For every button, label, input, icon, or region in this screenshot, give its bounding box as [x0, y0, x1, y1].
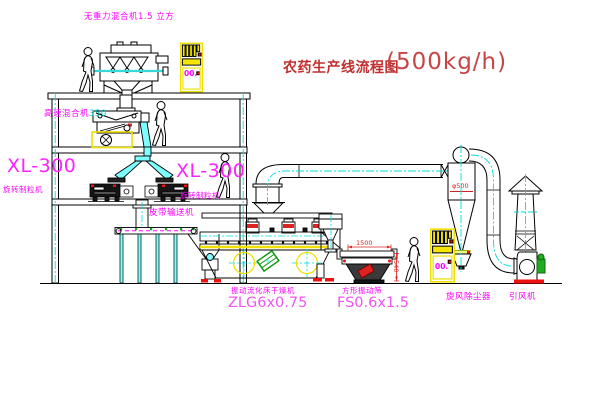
dim-screen-height: 540 [393, 260, 400, 272]
vibrating-screen [319, 214, 397, 283]
control-cabinet-right [431, 229, 454, 282]
label-high-speed-mixer: 高速混合机350 [44, 110, 107, 119]
exhaust-duct [253, 163, 450, 205]
label-granulator-left-model: XL-300 [7, 157, 76, 176]
cabinet-top-display: 00. [184, 69, 197, 78]
gravity-free-mixer [89, 42, 168, 95]
label-fan: 引风机 [509, 293, 536, 302]
worker-ground [406, 238, 421, 282]
rotary-valve [257, 251, 279, 271]
process-flow-drawing: 农药生产线流程图 (500kg/h) 无重力混合机1.5 立方 高速混合机350… [0, 0, 600, 403]
label-dryer-model: ZLG6x0.75 [228, 296, 307, 311]
label-granulator-right-model: XL-300 [176, 162, 245, 181]
label-cyclone-diameter: φ500 [452, 183, 469, 190]
fluid-bed-dryer [200, 203, 334, 282]
label-belt-conveyor: 皮带输送机 [149, 209, 194, 218]
label-dryer-name: 振动流化床干燥机 [231, 287, 295, 295]
high-speed-mixer [92, 95, 149, 148]
label-gravity-mixer: 无重力混合机1.5 立方 [84, 13, 174, 22]
drawing-title: 农药生产线流程图 [283, 57, 399, 77]
cabinet-right-display: 00. [435, 262, 448, 271]
induced-draft-fan [514, 252, 545, 284]
control-cabinet-top [181, 43, 203, 91]
label-screen-name: 方形振动筛 [342, 287, 382, 295]
dim-screen-length: 1500 [356, 240, 373, 247]
label-granulator-left-name: 旋转制粒机 [3, 186, 43, 194]
label-granulator-right-name: 旋转制粒机 [180, 192, 220, 200]
label-cyclone: 旋风除尘器 [446, 293, 491, 302]
drawing-capacity: (500kg/h) [386, 49, 507, 75]
worker-floor2 [153, 102, 168, 146]
label-high-speed-mixer-value: 350 [89, 109, 107, 119]
label-screen-model: FS0.6x1.5 [337, 296, 409, 311]
